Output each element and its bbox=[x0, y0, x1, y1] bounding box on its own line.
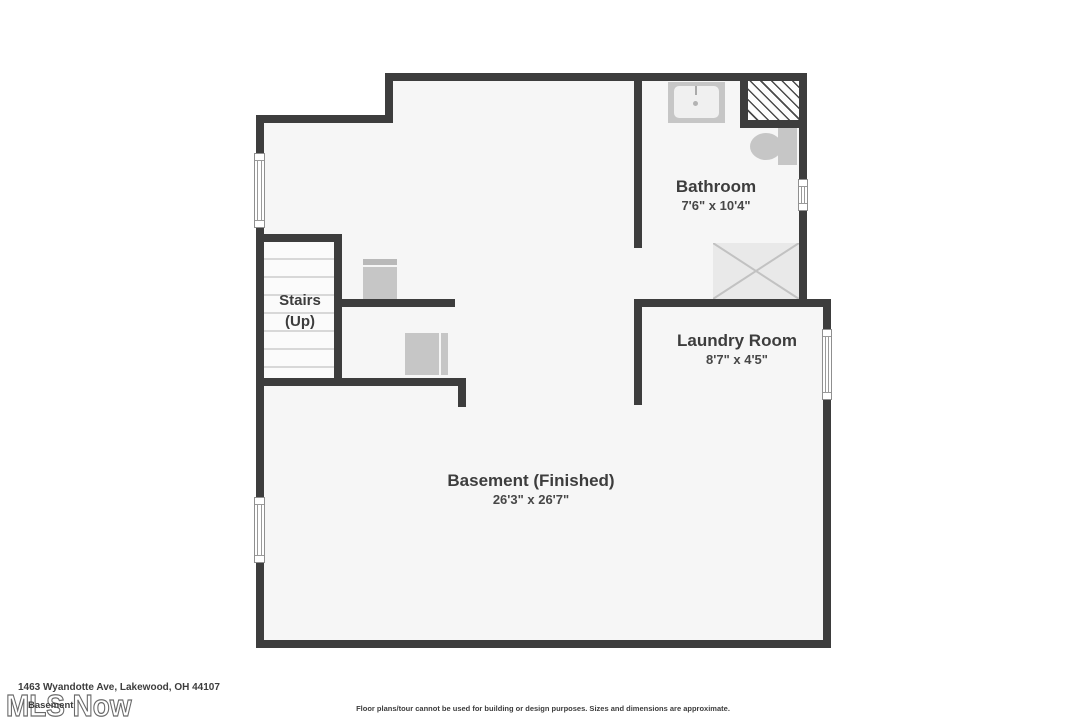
wall bbox=[256, 115, 393, 123]
window-frame bbox=[823, 392, 831, 393]
window-glazing bbox=[825, 336, 829, 393]
sink-drain bbox=[693, 101, 698, 106]
room-label-laundry: Laundry Room 8'7" x 4'5" bbox=[677, 330, 797, 369]
washer-dryer-panel bbox=[441, 333, 448, 375]
shower-icon bbox=[713, 243, 799, 299]
window-icon bbox=[254, 153, 265, 228]
window-frame bbox=[823, 336, 831, 337]
room-direction: (Up) bbox=[279, 311, 321, 332]
window-icon bbox=[798, 179, 808, 211]
furnace-lid bbox=[363, 259, 397, 265]
wall-stub bbox=[458, 386, 466, 407]
room-name: Basement (Finished) bbox=[447, 470, 614, 491]
room-dims: 8'7" x 4'5" bbox=[677, 351, 797, 369]
room-dims: 7'6" x 10'4" bbox=[676, 197, 756, 215]
room-name: Laundry Room bbox=[677, 330, 797, 351]
floor-plan-canvas: Bathroom 7'6" x 10'4" Laundry Room 8'7" … bbox=[0, 0, 1086, 724]
window-frame bbox=[255, 220, 264, 221]
wall-bathroom-left bbox=[634, 73, 642, 248]
window-glazing bbox=[257, 504, 262, 556]
washer-dryer-icon bbox=[405, 333, 439, 375]
room-label-bathroom: Bathroom 7'6" x 10'4" bbox=[676, 176, 756, 215]
window-frame bbox=[255, 504, 264, 505]
room-name: Stairs bbox=[279, 290, 321, 311]
room-label-stairs: Stairs (Up) bbox=[279, 290, 321, 332]
shower-x-lines bbox=[713, 243, 799, 299]
room-name: Bathroom bbox=[676, 176, 756, 197]
window-frame bbox=[255, 160, 264, 161]
wall-utility-alcove bbox=[342, 299, 455, 307]
wall-stairs-top bbox=[256, 234, 342, 242]
window-glazing bbox=[257, 160, 262, 221]
window-frame bbox=[799, 203, 807, 204]
room-label-basement: Basement (Finished) 26'3" x 26'7" bbox=[447, 470, 614, 509]
hatched-chase-icon bbox=[748, 81, 799, 120]
toilet-bowl bbox=[750, 133, 782, 160]
window-icon bbox=[254, 497, 265, 563]
disclaimer-text: Floor plans/tour cannot be used for buil… bbox=[0, 704, 1086, 713]
wall-stairs-right bbox=[334, 234, 342, 386]
window-glazing bbox=[801, 186, 805, 204]
furnace-icon bbox=[363, 267, 397, 299]
floor-label: Basement bbox=[28, 700, 73, 711]
wall-stairs-bottom bbox=[256, 378, 466, 386]
sink-faucet bbox=[695, 86, 697, 95]
window-frame bbox=[799, 186, 807, 187]
room-dims: 26'3" x 26'7" bbox=[447, 491, 614, 509]
wall bbox=[256, 640, 831, 648]
window-icon bbox=[822, 329, 832, 400]
wall-laundry-left bbox=[634, 299, 642, 405]
sink-icon bbox=[668, 82, 725, 123]
wall-chase-bottom bbox=[740, 120, 807, 128]
window-frame bbox=[255, 555, 264, 556]
wall-bathroom-laundry bbox=[634, 299, 831, 307]
